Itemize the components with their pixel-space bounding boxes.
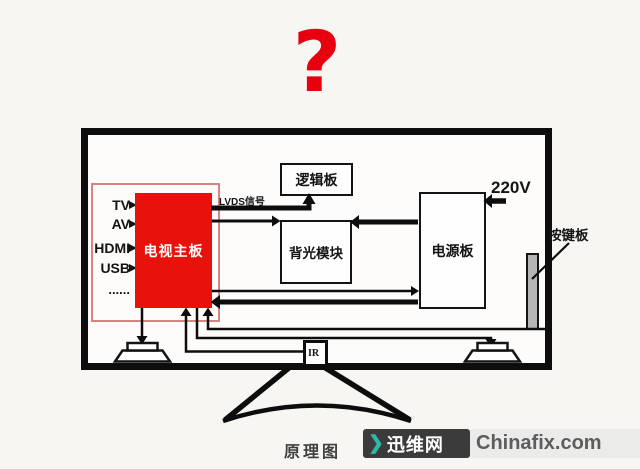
stand-right-leg: [324, 367, 410, 420]
chevron-icon: ❯: [368, 429, 384, 458]
stand-left-leg: [225, 367, 290, 420]
diagram-caption: 原理图: [284, 438, 341, 462]
ir-label: IR: [308, 348, 319, 359]
watermark-badge: ❯ 迅维网: [363, 429, 470, 458]
watermark-domain-strip: Chinafix.com: [470, 429, 640, 458]
logic-board-box: 逻辑板: [280, 163, 353, 196]
input-label-usb: USB: [58, 260, 130, 276]
watermark-domain-text: Chinafix.com: [476, 432, 602, 455]
input-label-more: ......: [58, 282, 130, 298]
schematic-canvas: ? TV AV HDMI USB ...... 电视主板 逻辑板 背光模块 电源…: [0, 0, 640, 469]
backlight-module-box: 背光模块: [280, 220, 352, 284]
mainboard-box: 电视主板: [135, 193, 212, 308]
keypad-board-label: 按键板: [548, 224, 589, 244]
input-label-usb-text: USB: [100, 260, 130, 276]
power-board-label: 电源板: [432, 241, 474, 261]
question-mark: ?: [283, 14, 351, 110]
input-label-more-text: ......: [108, 282, 130, 297]
mainboard-label: 电视主板: [144, 241, 204, 261]
input-label-tv-text: TV: [112, 197, 130, 213]
power-board-box: 电源板: [419, 192, 486, 309]
stand-base-arc: [223, 406, 411, 422]
keypad-strip: [526, 253, 539, 330]
voltage-220v-label: 220V: [491, 178, 531, 198]
input-label-av: AV: [58, 216, 130, 232]
ir-receiver-box: IR: [303, 340, 328, 367]
input-label-tv: TV: [58, 197, 130, 213]
input-label-hdmi-text: HDMI: [94, 240, 130, 256]
lvds-signal-label: LVDS信号: [219, 193, 265, 208]
watermark-site-name: 迅维网: [387, 431, 444, 457]
input-label-av-text: AV: [112, 216, 130, 232]
input-label-hdmi: HDMI: [58, 240, 130, 256]
logic-board-label: 逻辑板: [296, 170, 338, 190]
backlight-module-label: 背光模块: [289, 242, 343, 262]
